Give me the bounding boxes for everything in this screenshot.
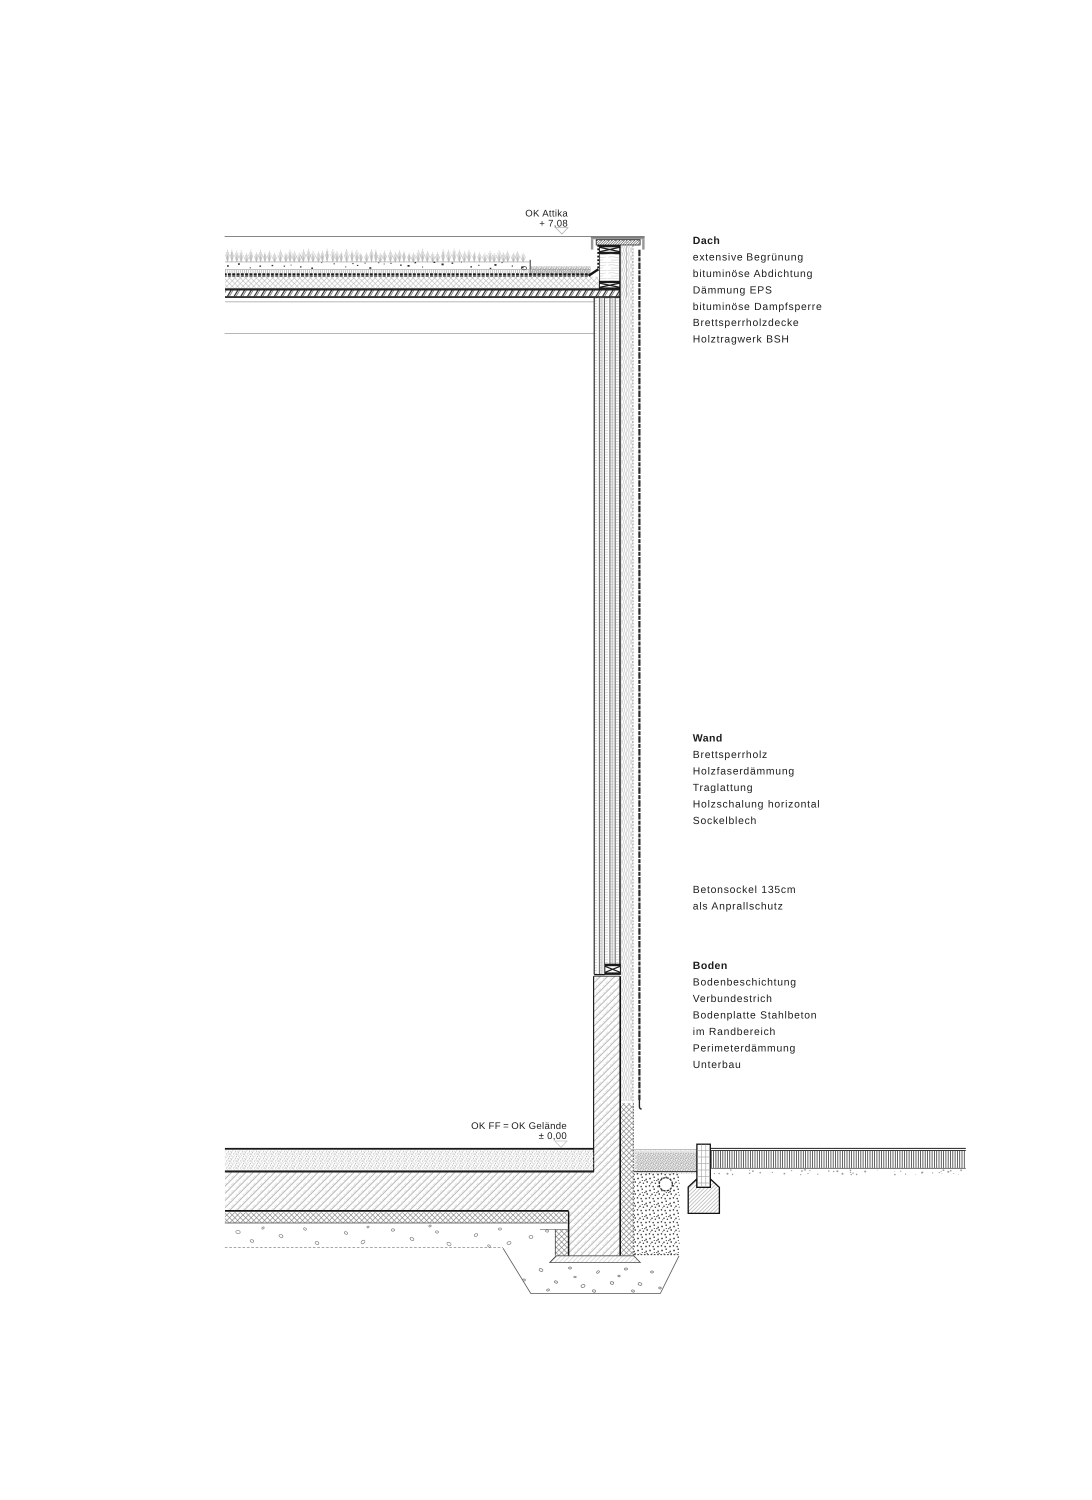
svg-text:Holztragwerk BSH: Holztragwerk BSH [693, 335, 790, 346]
svg-text:Sockelblech: Sockelblech [693, 816, 757, 827]
svg-text:Perimeterdämmung: Perimeterdämmung [693, 1044, 796, 1055]
svg-text:Traglattung: Traglattung [693, 783, 753, 794]
svg-text:Betonsockel 135cm: Betonsockel 135cm [693, 885, 796, 896]
svg-text:Boden: Boden [693, 960, 728, 972]
svg-text:Bodenplatte Stahlbeton: Bodenplatte Stahlbeton [693, 1011, 818, 1022]
svg-text:Dämmung EPS: Dämmung EPS [693, 285, 773, 296]
svg-text:als Anprallschutz: als Anprallschutz [693, 902, 784, 913]
svg-text:Brettsperrholz: Brettsperrholz [693, 750, 768, 761]
svg-text:im Randbereich: im Randbereich [693, 1027, 776, 1038]
svg-text:± 0,00: ± 0,00 [539, 1131, 567, 1142]
svg-text:Verbundestrich: Verbundestrich [693, 994, 773, 1005]
svg-text:Holzfaserdämmung: Holzfaserdämmung [693, 767, 795, 778]
svg-text:bituminöse Abdichtung: bituminöse Abdichtung [693, 269, 813, 280]
svg-text:Wand: Wand [693, 733, 723, 745]
svg-text:Holzschalung horizontal: Holzschalung horizontal [693, 800, 821, 811]
svg-text:bituminöse Dampfsperre: bituminöse Dampfsperre [693, 302, 823, 313]
svg-text:Brettsperrholzdecke: Brettsperrholzdecke [693, 318, 800, 329]
svg-text:Dach: Dach [693, 235, 720, 247]
svg-text:extensive Begrünung: extensive Begrünung [693, 253, 804, 264]
svg-text:Bodenbeschichtung: Bodenbeschichtung [693, 978, 797, 989]
svg-text:Unterbau: Unterbau [693, 1060, 742, 1071]
